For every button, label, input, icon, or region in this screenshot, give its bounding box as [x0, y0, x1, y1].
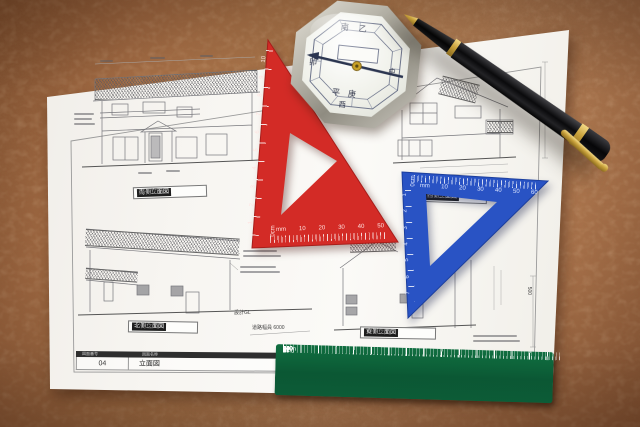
ruler-number: 10	[261, 56, 267, 63]
ruler-number: 8	[258, 94, 264, 98]
ruler-number: 50	[377, 223, 384, 229]
label-south-elevation: 南側立面図 1/100	[133, 185, 207, 200]
ruler-number: 60	[531, 190, 538, 196]
ruler-number: 20	[318, 225, 325, 231]
label-north-scale: 1/100	[132, 323, 152, 329]
ruler-number: mm	[420, 183, 430, 190]
ruler-number: 10	[299, 226, 306, 232]
blue-square-zero-label: 0cm	[411, 175, 417, 186]
ruler-number: 1	[248, 221, 254, 225]
red-square-zero-label: 0cm	[271, 225, 277, 236]
ruler-number: 6	[255, 130, 261, 134]
ruler-number: 3	[403, 226, 409, 230]
ruler-number: 5	[254, 148, 260, 152]
green-ruler: 0mm102030405060708090100110120130140150 …	[274, 344, 553, 403]
ruler-number: 7	[256, 112, 262, 116]
ruler-number: 2	[249, 203, 255, 207]
ruler-number: 10	[441, 184, 448, 190]
ruler-number: mm	[276, 227, 286, 233]
ruler-number: 7	[405, 291, 411, 295]
drawing-number: 04	[77, 357, 129, 369]
ruler-number: 3	[251, 185, 257, 189]
ruler-number: 30	[477, 186, 484, 192]
label-east-scale: 1/100	[364, 329, 384, 335]
gl-annotation: 設計GL	[234, 311, 251, 317]
label-south-scale: 1/100	[137, 189, 157, 196]
ruler-number: 20	[459, 185, 466, 191]
ruler-number: 6	[405, 275, 411, 279]
ruler-number: 1	[402, 193, 408, 197]
compass-kanji-mid: 中	[388, 68, 396, 76]
ruler-number: 9	[259, 76, 265, 80]
ruler-number: 4	[252, 166, 258, 170]
compass-kanji-west: 西	[338, 101, 346, 109]
ruler-number: 40	[495, 188, 502, 194]
ruler-number: 50	[513, 189, 520, 195]
compass-kanji-hira: 平	[332, 89, 341, 98]
drawing-name: 立面図	[129, 357, 160, 369]
ruler-number: 40	[358, 224, 365, 230]
ruler-number: 30	[338, 225, 345, 231]
label-north-elevation: 北側立面図 1/100	[128, 320, 198, 333]
ruler-number: 4	[404, 242, 410, 246]
ruler-number: 2	[403, 209, 409, 213]
ruler-number: 5	[404, 258, 410, 262]
label-east-elevation: 東側立面図 1/100	[360, 326, 436, 339]
compass-kanji-kanoe: 庚	[347, 90, 356, 99]
compass-kanji-u: 卯	[309, 58, 318, 67]
road-width-annotation: 道路幅員 6000	[252, 326, 285, 332]
photo-drafting-scene: 設計GL 道路幅員 6000 500 南側立面図 1/100 西側立面図 1/1…	[0, 0, 640, 427]
